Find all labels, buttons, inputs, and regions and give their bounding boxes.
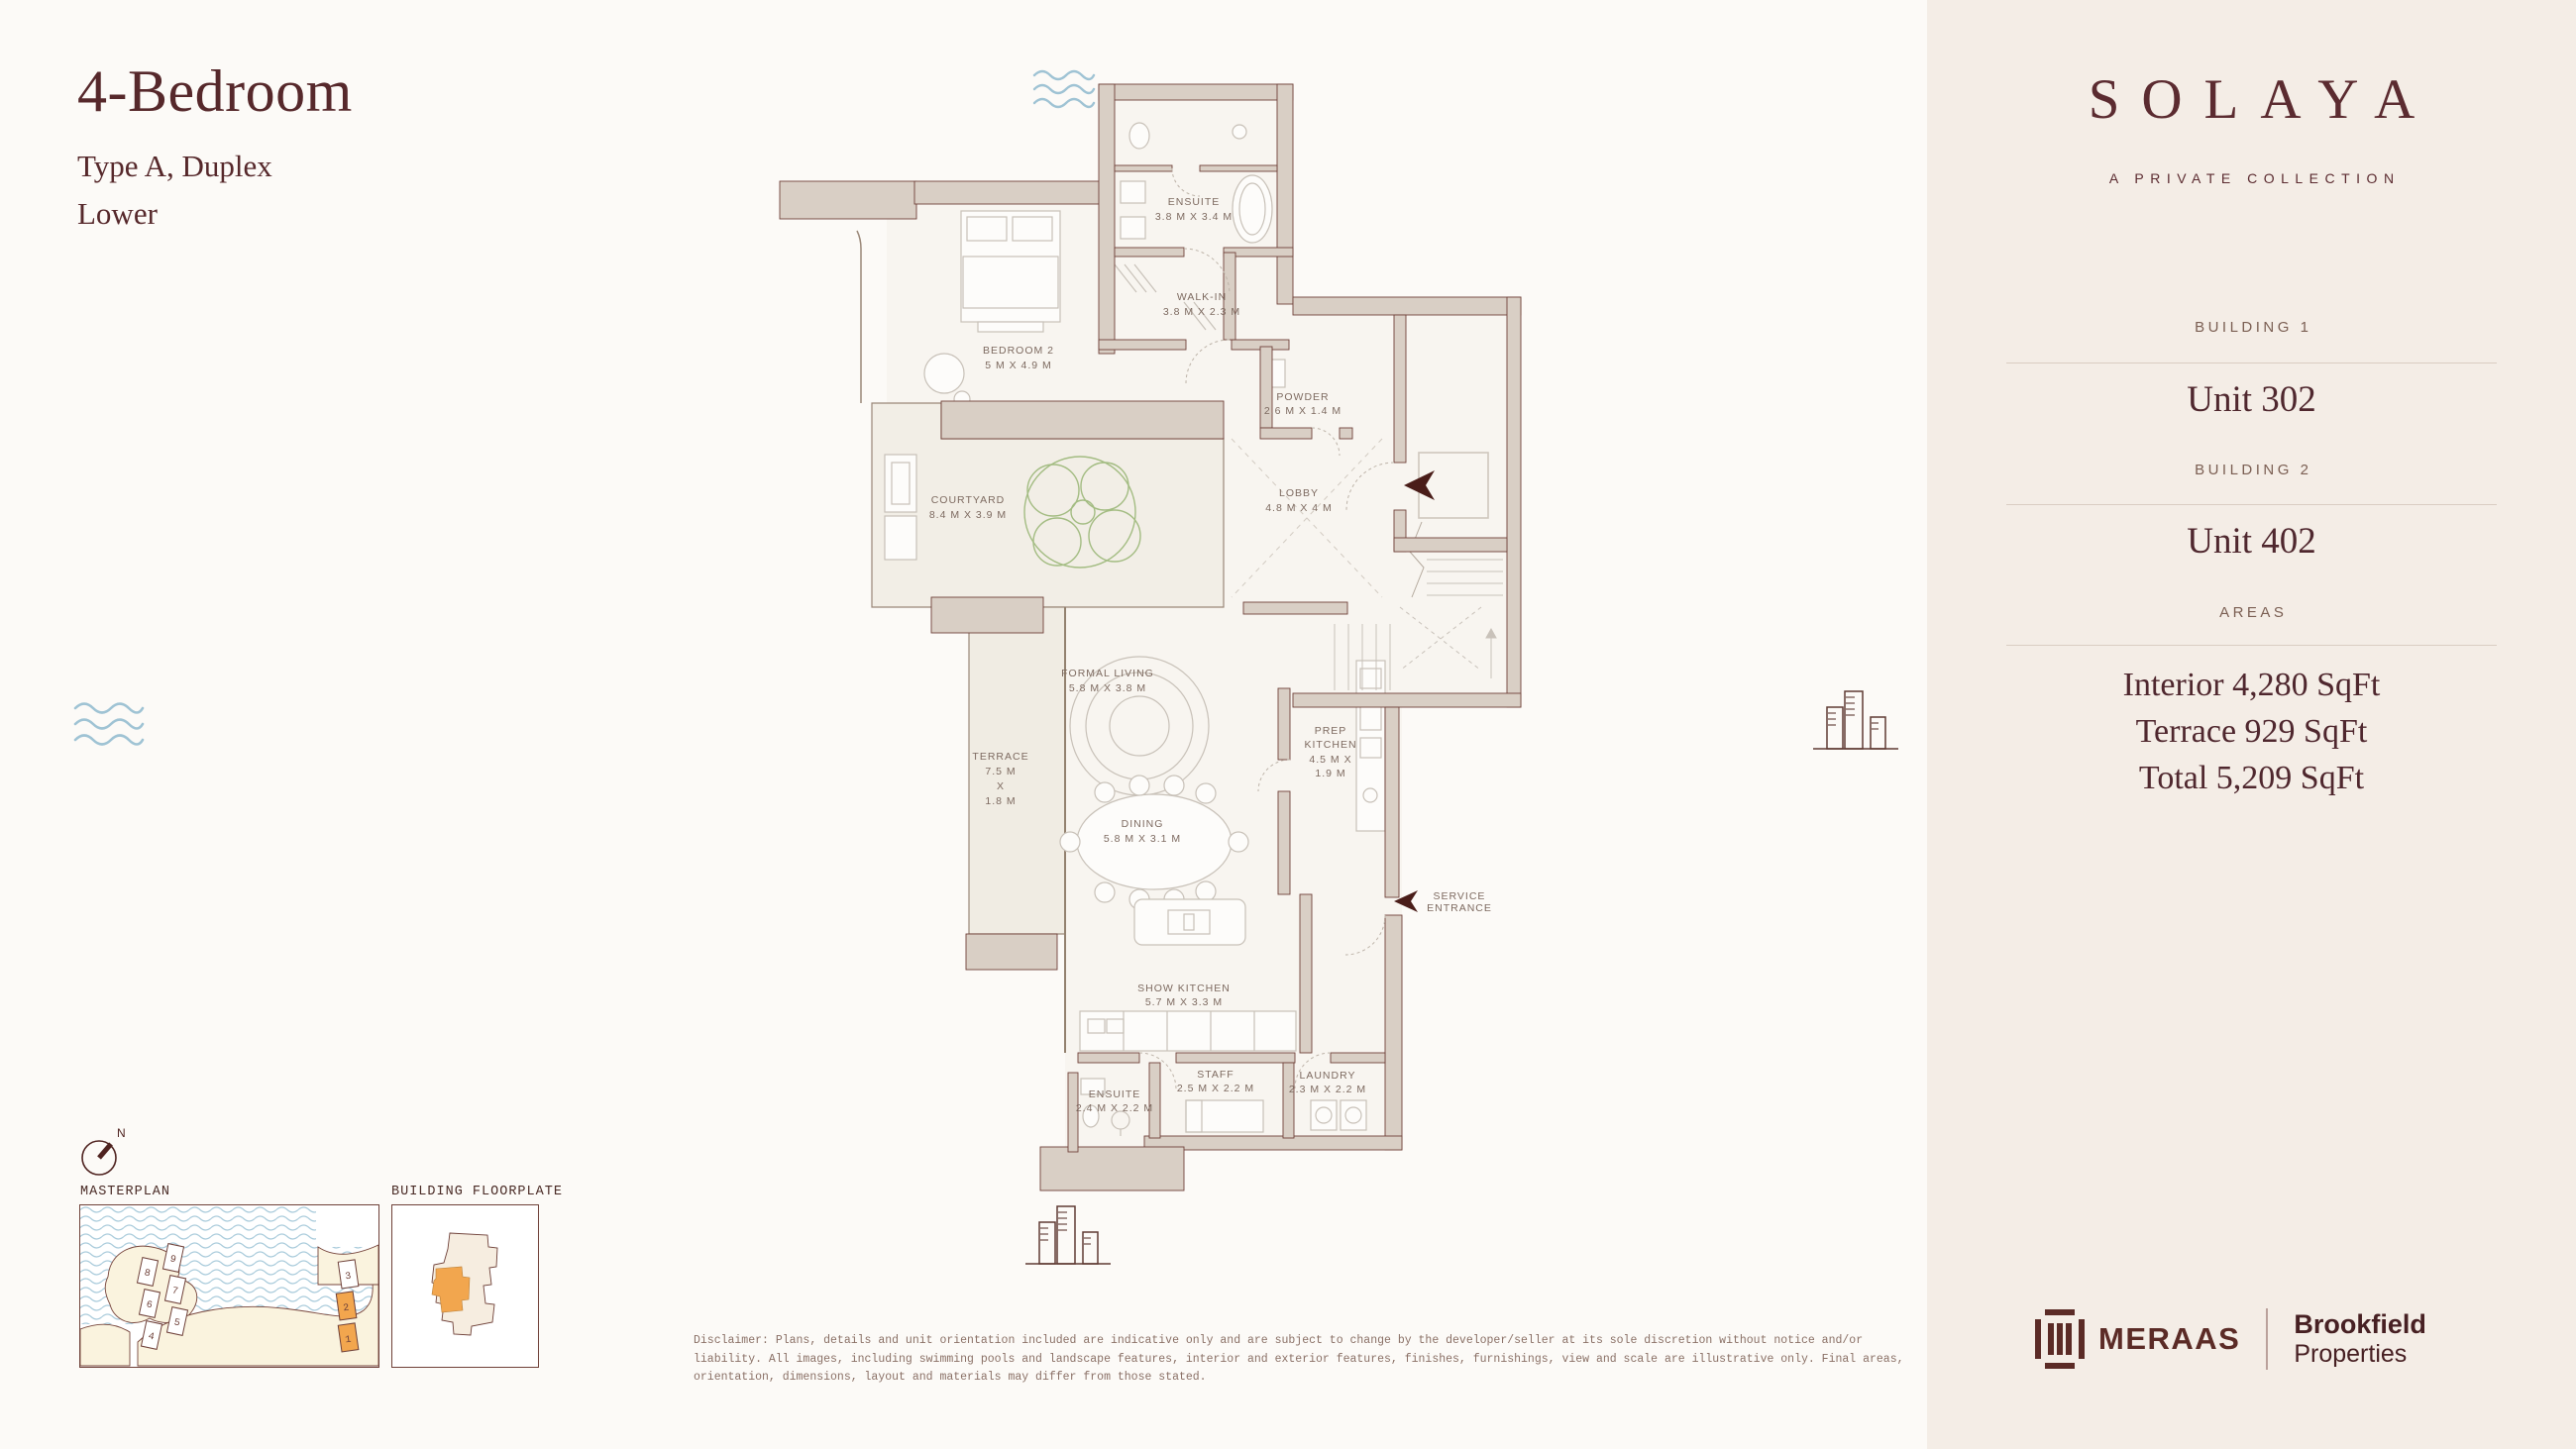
brookfield-line1: Brookfield — [2294, 1309, 2426, 1339]
floorplate-label: BUILDING FLOORPLATE — [391, 1185, 563, 1199]
toilet — [1129, 123, 1149, 149]
compass-icon: N — [73, 1125, 145, 1183]
shower-drain — [1233, 125, 1246, 139]
floor-label: Lower — [77, 196, 158, 232]
brand-wordmark: SOLAYA — [1927, 67, 2576, 132]
bed — [961, 211, 1060, 332]
page-title: 4-Bedroom — [77, 57, 353, 126]
divider — [2006, 504, 2497, 505]
terrace-area — [969, 607, 1065, 934]
bathtub — [1233, 175, 1272, 243]
prep-counter — [1356, 661, 1385, 831]
brand-tagline: A PRIVATE COLLECTION — [1927, 170, 2576, 186]
compass-north-label: N — [117, 1126, 126, 1140]
kitchen-counter — [1080, 1011, 1296, 1051]
floor-plan: ENSUITE3.8 M X 3.4 M WALK-IN3.8 M X 2.3 … — [689, 54, 1560, 1218]
meraas-wordmark: MERAAS — [2098, 1321, 2240, 1357]
sidebar: SOLAYA A PRIVATE COLLECTION BUILDING 1 U… — [1927, 0, 2576, 1449]
disclaimer-text: Disclaimer: Plans, details and unit orie… — [694, 1332, 1904, 1388]
logo-divider — [2266, 1308, 2268, 1370]
armchair — [924, 354, 964, 393]
area-total: Total 5,209 SqFt — [1927, 755, 2576, 801]
building2-label: BUILDING 2 — [1927, 462, 2576, 478]
masterplan-label: MASTERPLAN — [80, 1185, 170, 1199]
logos-row: MERAAS Brookfield Properties — [2033, 1303, 2426, 1375]
staff-bed — [1186, 1100, 1263, 1132]
area-interior: Interior 4,280 SqFt — [1927, 662, 2576, 708]
area-terrace: Terrace 929 SqFt — [1927, 708, 2576, 755]
skyline-icon — [1023, 1196, 1113, 1271]
skyline-icon — [1811, 681, 1900, 756]
areas-label: AREAS — [1927, 604, 2576, 621]
kitchen-island — [1134, 899, 1245, 945]
building1-unit: Unit 302 — [1927, 378, 2576, 421]
brookfield-logo: Brookfield Properties — [2294, 1309, 2426, 1369]
building2-unit: Unit 402 — [1927, 520, 2576, 563]
sink — [1121, 217, 1145, 239]
divider — [2006, 362, 2497, 363]
masterplan-map: 8 6 4 9 7 5 3 2 1 — [79, 1204, 379, 1368]
brookfield-line2: Properties — [2294, 1339, 2426, 1369]
service-entrance-label: SERVICEENTRANCE — [1427, 890, 1492, 914]
water-waves-icon — [71, 699, 147, 753]
courtyard-sofa — [885, 455, 916, 560]
building1-label: BUILDING 1 — [1927, 319, 2576, 336]
areas-values: Interior 4,280 SqFt Terrace 929 SqFt Tot… — [1927, 662, 2576, 801]
meraas-logo-icon — [2033, 1309, 2087, 1369]
floorplate-map — [391, 1204, 539, 1368]
page-subtitle: Type A, Duplex — [77, 149, 272, 184]
divider — [2006, 645, 2497, 646]
sink — [1121, 181, 1145, 203]
